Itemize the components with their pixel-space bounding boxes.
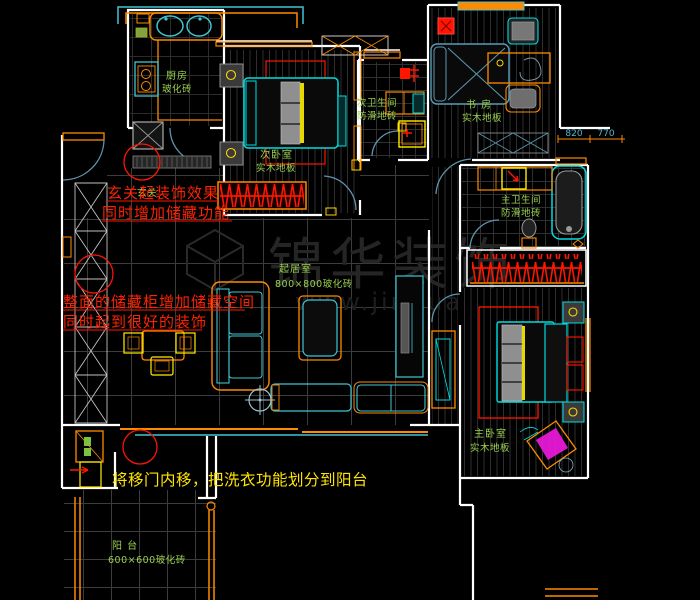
label-kitchen-material: 玻化砖 (162, 83, 192, 95)
wardrobe-hanging-clothes (218, 182, 306, 209)
note-entry-line2: 同时增加储藏功能 (102, 204, 230, 222)
label-living: 起居室 (279, 262, 312, 275)
nightstand (220, 142, 243, 165)
label-bath2: 次卫生间 (357, 97, 397, 109)
dresser-mirror (338, 96, 346, 146)
nightstand (563, 402, 584, 422)
coffee-table (299, 296, 341, 360)
label-balcony: 阳 台 (112, 539, 138, 552)
bed-pillows (281, 82, 300, 144)
label-master-bath-material: 防滑地砖 (501, 207, 541, 219)
label-bedroom2-material: 实木地板 (256, 162, 296, 174)
plumbing-symbol (400, 68, 410, 79)
entry-door-arc (63, 140, 104, 180)
note-storage-line2: 同时起到很好的装饰 (63, 313, 207, 331)
label-study-material: 实木地板 (462, 112, 502, 124)
cad-floor-plan: 锦华装饰 www.jinhua (0, 0, 700, 600)
tv-cabinet (396, 276, 423, 377)
entry-door-panel (63, 133, 104, 140)
label-kitchen: 厨房 (166, 69, 188, 82)
dim-value-right: 770 (597, 129, 614, 139)
dimension-line: 820 770 (558, 129, 625, 143)
note-storage-line1: 整面的储藏柜增加储藏空间 (63, 293, 255, 311)
dim-value-left: 820 (565, 129, 582, 139)
headboard (545, 324, 567, 402)
floor-plan-canvas: 锦华装饰 www.jinhua (0, 0, 700, 600)
note-laundry: 将移门内移，把洗衣功能划分到阳台 (112, 471, 368, 489)
label-bath2-material: 防滑地砖 (357, 110, 397, 122)
label-master-bath: 主卫生间 (501, 194, 541, 206)
master-wardrobe-hanging-clothes (470, 254, 584, 283)
label-living-material: 800×800玻化砖 (275, 278, 353, 290)
label-study: 书 房 (466, 98, 492, 111)
nightstand (563, 302, 584, 323)
label-master-bedroom: 主卧室 (474, 427, 507, 440)
label-bedroom2: 次卧室 (260, 148, 293, 161)
laundry-cabinet (80, 462, 101, 487)
lower-balcony-rail (545, 589, 598, 596)
note-entry-line1: 玄关起装饰效果 (107, 184, 219, 202)
nightstand (220, 64, 243, 87)
label-master-bedroom-material: 实木地板 (470, 442, 510, 454)
entry-shoe-cabinet (133, 156, 211, 168)
sliding-door (120, 429, 428, 435)
label-balcony-material: 600×600玻化砖 (108, 554, 186, 566)
